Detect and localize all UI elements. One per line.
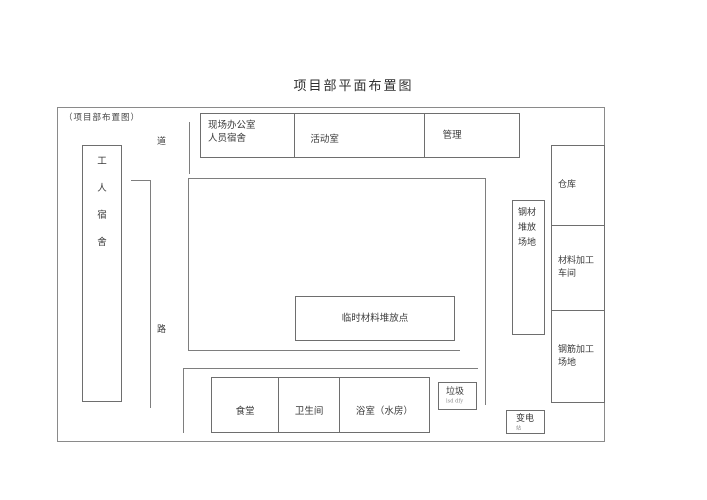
steel-yard-label-line2: 堆放 <box>518 221 544 236</box>
management-cell: 管理 <box>425 114 519 157</box>
page-title: 项目部平面布置图 <box>0 75 707 94</box>
road-label-bottom: 路 <box>157 324 166 337</box>
activity-room-cell: 活动室 <box>295 114 424 157</box>
garbage-label: 垃圾 <box>446 386 476 399</box>
toilet-label: 卫生间 <box>295 405 324 418</box>
garbage-box: 垃圾 lsd dfy <box>438 382 477 410</box>
canteen-cell: 食堂 <box>212 378 279 432</box>
central-area-right-line <box>485 178 486 405</box>
office-row-box: 现场办公室 人员宿舍 活动室 管理 <box>200 113 520 158</box>
worker-dorm-char: 舍 <box>97 234 107 248</box>
substation-box: 变电 站 <box>506 410 545 434</box>
central-area-left-line <box>188 178 189 350</box>
road-line-tick <box>131 180 150 181</box>
garbage-sublabel: lsd dfy <box>446 399 472 404</box>
site-office-label-line2: 人员宿舍 <box>208 132 294 145</box>
substation-sublabel: 站 <box>516 426 540 431</box>
canteen-label: 食堂 <box>236 405 255 418</box>
central-area-top-line <box>188 178 485 179</box>
management-label: 管理 <box>443 129 519 142</box>
rebar-yard-label-line2: 场地 <box>558 357 604 370</box>
site-office-label-line1: 现场办公室 <box>208 119 294 132</box>
bathroom-label: 浴室（水房） <box>356 405 413 418</box>
warehouse-cell: 仓库 <box>552 146 604 226</box>
gate-segment-line <box>189 122 190 174</box>
worker-dorm-char: 宿 <box>97 207 107 221</box>
warehouse-label: 仓库 <box>558 179 604 192</box>
road-line-vertical <box>150 180 151 408</box>
material-workshop-cell: 材料加工 车间 <box>552 226 604 311</box>
temp-material-box: 临时材料堆放点 <box>295 296 455 341</box>
material-workshop-label-line2: 车间 <box>558 268 604 281</box>
steel-yard-label-line3: 场地 <box>518 236 544 251</box>
right-column-box: 仓库 材料加工 车间 钢筋加工 场地 <box>551 145 605 403</box>
temp-material-label: 临时材料堆放点 <box>342 312 409 325</box>
activity-room-label: 活动室 <box>310 133 423 146</box>
facility-row-box: 食堂 卫生间 浴室（水房） <box>211 377 430 433</box>
rebar-yard-label-line1: 钢筋加工 <box>558 344 604 357</box>
worker-dormitory-label: 工 人 宿 舍 <box>83 146 121 248</box>
worker-dormitory-box: 工 人 宿 舍 <box>82 145 122 402</box>
bottom-block-top-line <box>183 368 478 369</box>
steel-yard-label-line1: 钢材 <box>518 206 544 221</box>
site-plan-canvas: 项目部平面布置图 （项目部布置图） 工 人 宿 舍 道 路 现场办公室 人员宿舍… <box>0 0 707 500</box>
bottom-block-left-line <box>183 368 184 433</box>
bathroom-cell: 浴室（水房） <box>340 378 429 432</box>
worker-dorm-char: 工 <box>97 153 107 167</box>
central-area-bottom-line <box>188 350 460 351</box>
road-label-top: 道 <box>157 136 166 149</box>
rebar-yard-cell: 钢筋加工 场地 <box>552 311 604 402</box>
material-workshop-label-line1: 材料加工 <box>558 255 604 268</box>
site-office-cell: 现场办公室 人员宿舍 <box>201 114 295 157</box>
worker-dorm-char: 人 <box>97 180 107 194</box>
toilet-cell: 卫生间 <box>279 378 339 432</box>
steel-yard-box: 钢材 堆放 场地 <box>512 200 545 335</box>
substation-label: 变电 <box>516 413 544 426</box>
frame-label: （项目部布置图） <box>64 111 140 123</box>
